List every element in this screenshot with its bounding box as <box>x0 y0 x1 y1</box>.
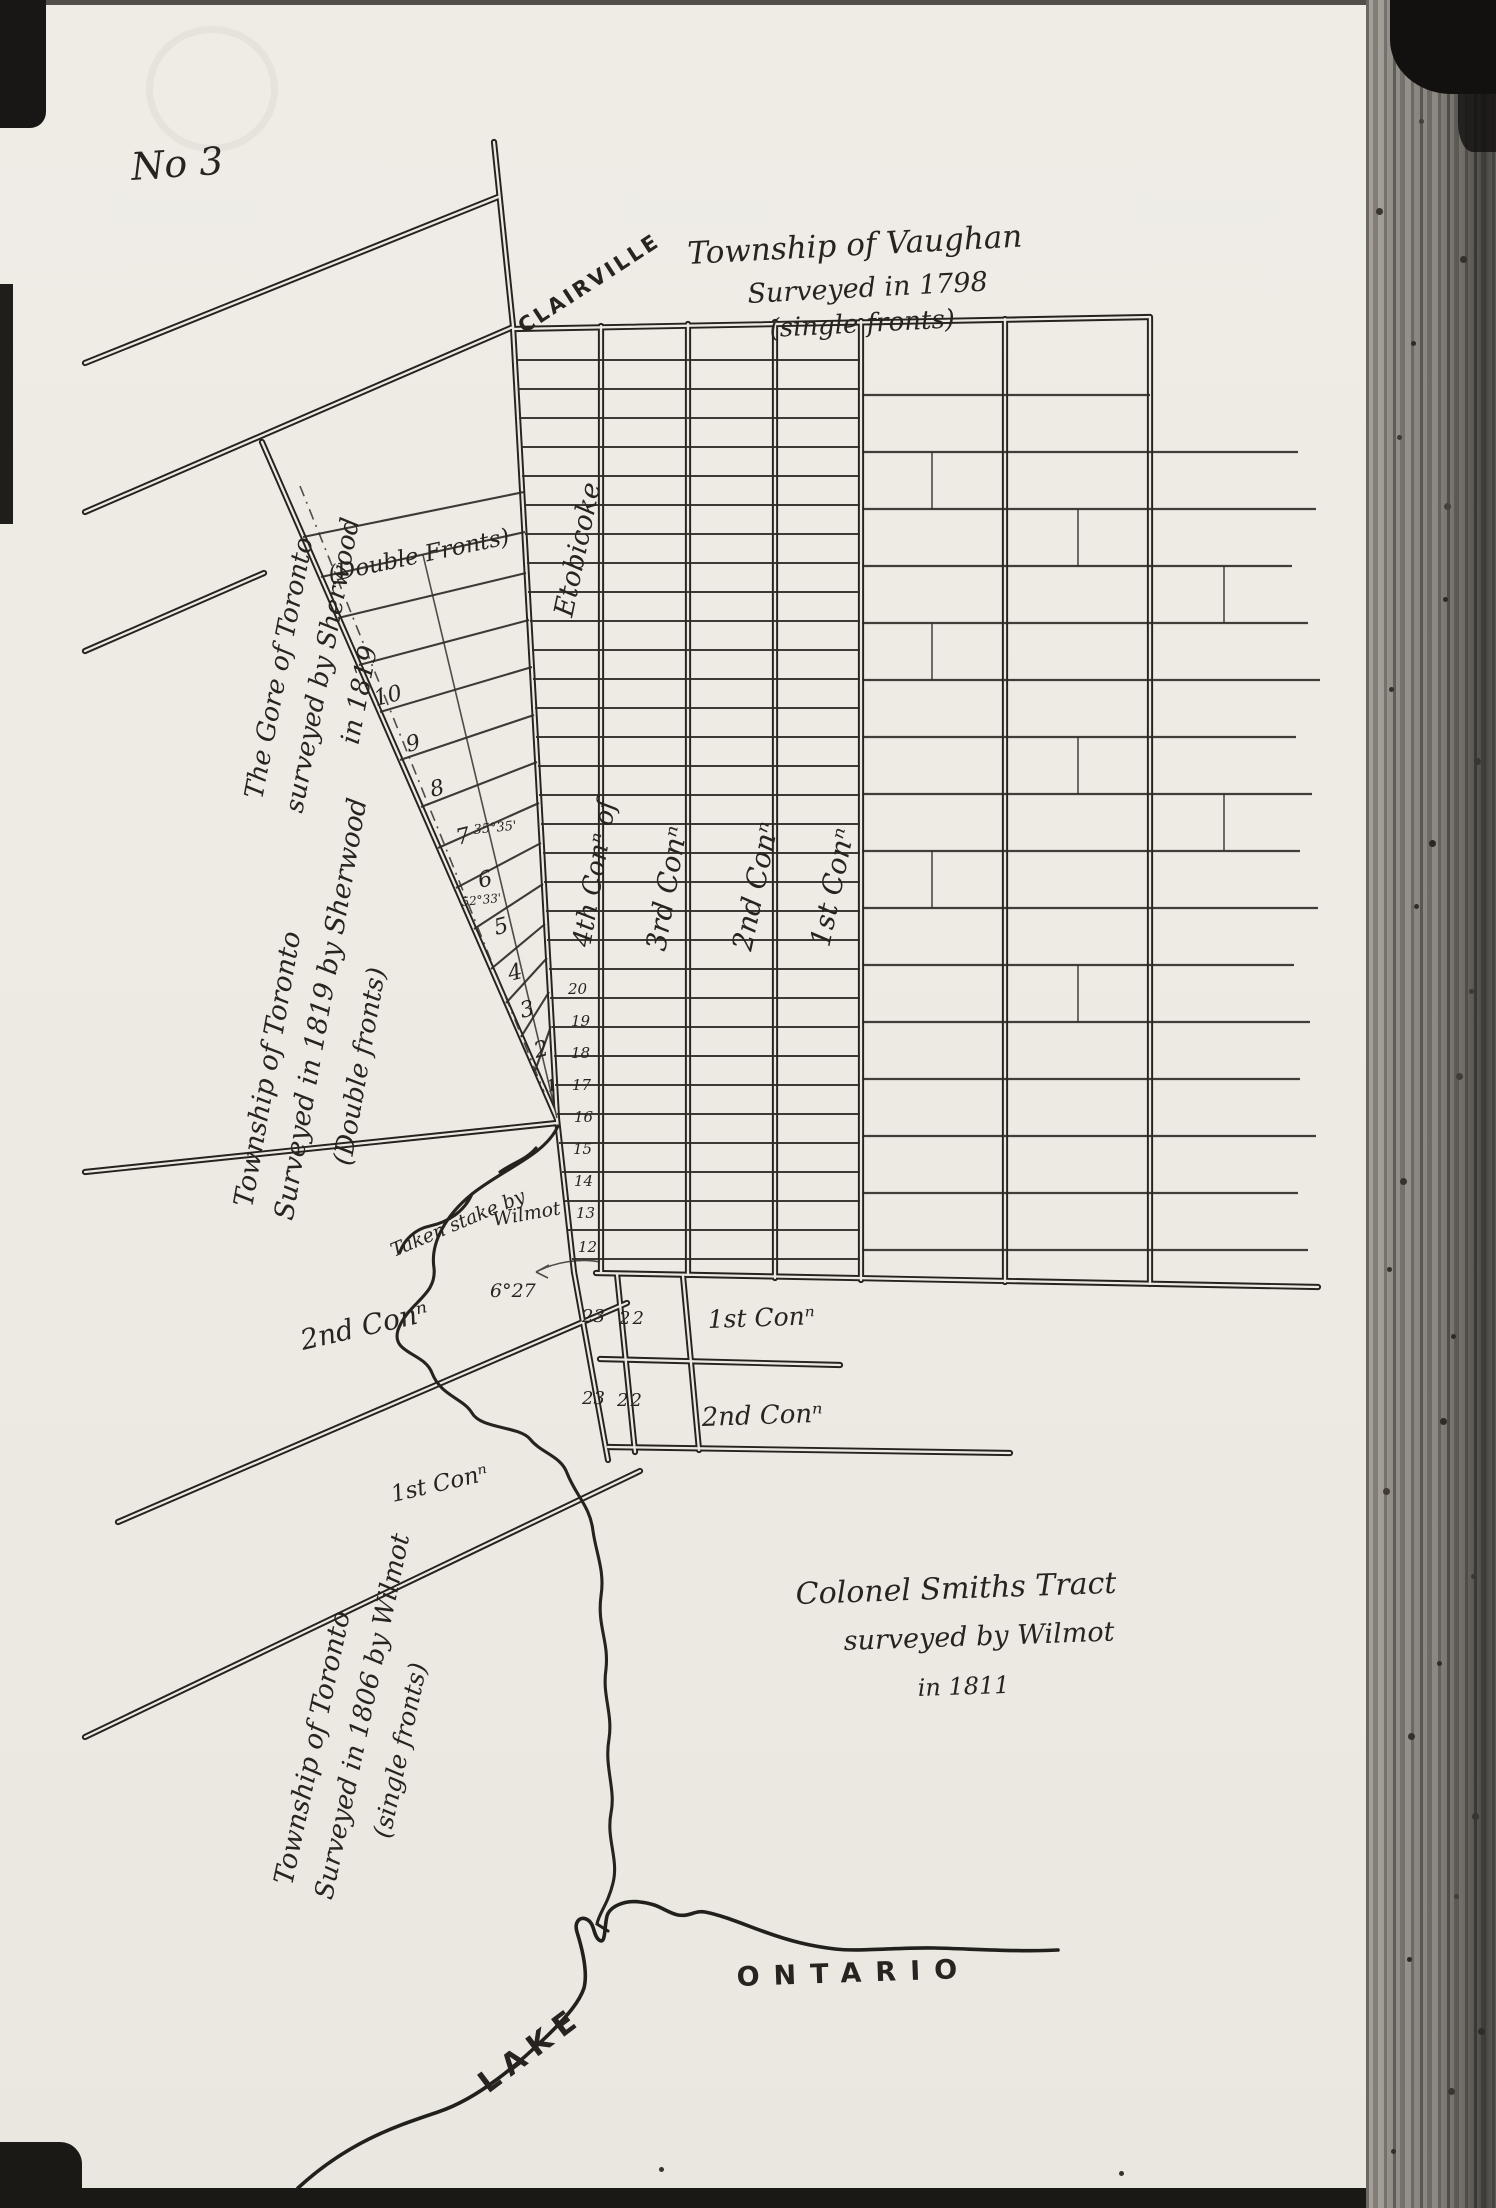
vaughan-lot-lines <box>862 395 1320 1250</box>
smith-title-line1: Colonel Smiths Tract <box>795 1566 1118 1612</box>
paper-emboss-seal <box>146 26 278 152</box>
scan-speckles-2 <box>0 0 3 3</box>
vaughan-title-line3: (single fronts) <box>769 304 956 344</box>
tract-row2-lot-23: 23 <box>581 1388 605 1409</box>
scan-top-edge <box>0 0 1402 5</box>
smith-title-line3: in 1811 <box>917 1671 1010 1702</box>
strip-lot-14: 14 <box>574 1172 593 1190</box>
creek-branch-small <box>500 1148 536 1172</box>
con2-road-label: 2nd Conⁿ <box>296 1295 431 1357</box>
lake-shoreline <box>298 1902 1058 2188</box>
gore-lot-3: 3 <box>517 996 537 1024</box>
gore-lot-5: 5 <box>491 913 511 941</box>
tract-row2-label: 2nd Conⁿ <box>700 1399 823 1433</box>
scan-left-edge-mark <box>0 284 13 524</box>
strip-lot-18: 18 <box>571 1044 590 1062</box>
strip-lot-17: 17 <box>572 1076 592 1094</box>
gore-lot-4: 4 <box>504 959 525 987</box>
toronto1806-title: Township of Toronto Surveyed in 1806 by … <box>267 1521 458 1911</box>
tract-row2-lot-22: 22 <box>616 1390 644 1411</box>
angle-annotation-a: 35°35' <box>473 819 518 838</box>
gore-centre-line <box>423 555 557 1118</box>
strip-lot-20: 20 <box>567 980 588 998</box>
scan-topright-blob-small <box>1458 78 1496 152</box>
con1-road-label: 1st Conⁿ <box>389 1460 491 1508</box>
scan-topleft-corner <box>0 0 46 128</box>
strip-lot-numbers: 20 19 18 17 16 15 14 13 12 <box>567 980 597 1256</box>
map-drawing: No 3 Township of Vaughan Surveyed in 179… <box>0 0 1496 2208</box>
lake-label: LAKE <box>472 1999 591 2100</box>
concession-1-label: 1st Conⁿ <box>804 825 861 949</box>
angle-annotation-b: 52°33' <box>461 891 502 909</box>
smith-title-line2: surveyed by Wilmot <box>843 1617 1115 1657</box>
scan-bottom-edge <box>76 2188 1386 2208</box>
tract-row1-label: 1st Conⁿ <box>707 1301 815 1334</box>
strip-lot-15: 15 <box>573 1140 592 1158</box>
gore-lot-numbers: 10 9 8 7 6 5 4 3 2 1 <box>371 681 558 1096</box>
tract-row1-lot-22: 22 <box>618 1308 646 1329</box>
angle-annotation-c: 6°27 <box>490 1280 537 1302</box>
toronto1819-title: Township of Toronto Surveyed in 1819 by … <box>227 788 420 1230</box>
strip-lot-19: 19 <box>571 1012 591 1030</box>
ontario-label: ONTARIO <box>736 1954 972 1993</box>
gore-lot-8: 8 <box>427 775 447 803</box>
strip-lot-13: 13 <box>576 1204 595 1222</box>
tract-row1-lot-23: 23 <box>581 1306 605 1327</box>
scanned-survey-map-page: No 3 Township of Vaughan Surveyed in 179… <box>0 0 1496 2208</box>
strip-lot-16: 16 <box>574 1108 594 1126</box>
angle-arrow <box>536 1260 600 1278</box>
strip-lot-12: 12 <box>578 1238 597 1256</box>
gore-lot-9: 9 <box>403 730 423 758</box>
scan-right-page-curl <box>1366 0 1496 2208</box>
scan-bottomleft-corner <box>0 2142 82 2208</box>
gore-lot-6: 6 <box>475 866 495 894</box>
concession-4-label: 4th Conⁿ of <box>567 794 623 951</box>
clairville-label: CLAIRVILLE <box>514 229 665 339</box>
vaughan-title-line1: Township of Vaughan <box>687 218 1024 271</box>
gore-lot-7: 7 <box>453 823 473 851</box>
